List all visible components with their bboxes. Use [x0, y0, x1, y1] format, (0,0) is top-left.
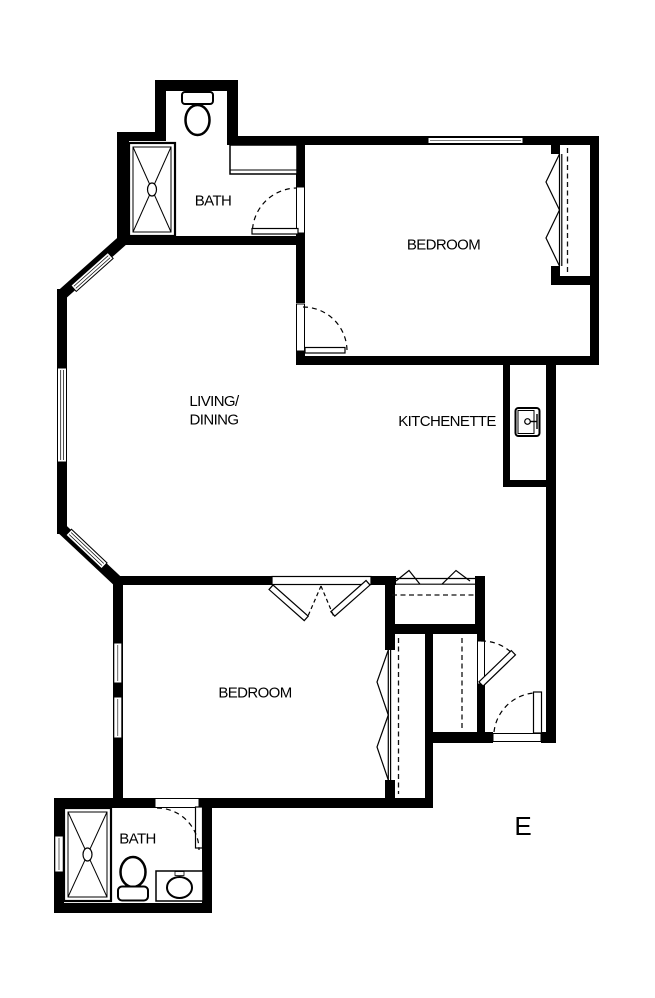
- svg-text:DINING: DINING: [190, 412, 239, 429]
- svg-text:KITCHENETTE: KITCHENETTE: [398, 413, 496, 430]
- svg-text:BATH: BATH: [119, 831, 156, 848]
- svg-text:BATH: BATH: [195, 193, 232, 210]
- svg-text:LIVING/: LIVING/: [189, 393, 240, 410]
- svg-text:E: E: [514, 811, 531, 841]
- svg-text:BEDROOM: BEDROOM: [218, 685, 291, 702]
- svg-text:BEDROOM: BEDROOM: [407, 237, 480, 254]
